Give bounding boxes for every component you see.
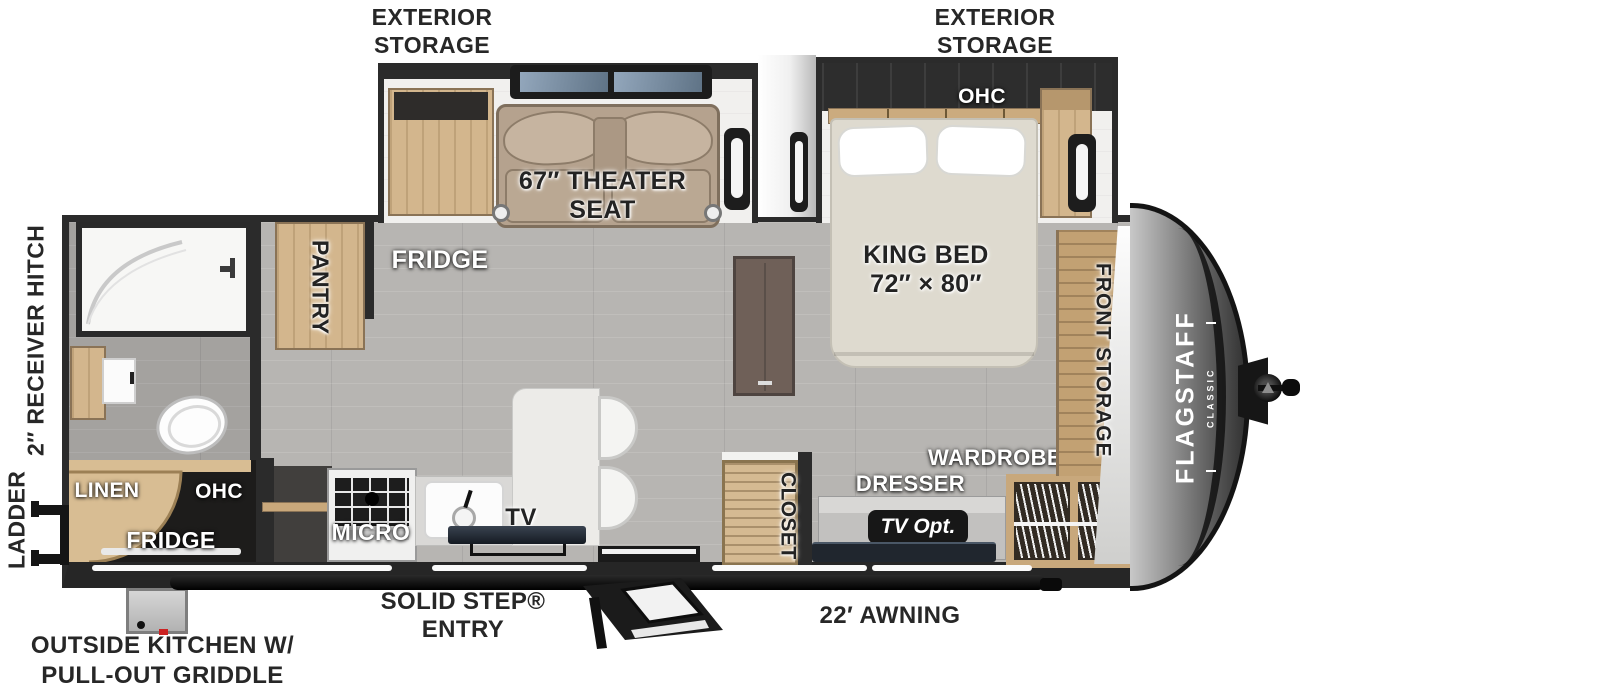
wardrobe-divider-icon xyxy=(1070,482,1078,560)
window-slit-icon xyxy=(1076,144,1088,200)
closet-label: CLOSET xyxy=(772,466,802,566)
tv-option-badge: TV Opt. xyxy=(868,510,968,544)
ladder-arm-bottom-icon xyxy=(36,554,64,564)
fridge-label: FRIDGE xyxy=(390,246,490,276)
tv-option-label: TV Opt. xyxy=(881,515,956,539)
wardrobe-label: WARDROBE xyxy=(915,444,1075,472)
slide-fridge-cabinet xyxy=(388,88,494,216)
king-bed-label-line2: 72″ × 80″ xyxy=(870,270,982,300)
outside-ohc-label: OHC xyxy=(190,479,248,505)
king-bed-label-line1: KING BED xyxy=(863,241,988,271)
exterior-storage-rear-line1: EXTERIOR xyxy=(372,3,493,31)
entertainment-cabinet xyxy=(733,256,795,396)
window-pane-icon xyxy=(614,72,702,92)
brand-name-label: FLAGSTAFF xyxy=(1168,235,1204,560)
outside-kitchen-line2: PULL-OUT GRIDDLE xyxy=(41,661,283,691)
outside-linen-label: LINEN xyxy=(72,478,142,504)
hangers-icon xyxy=(1016,484,1068,558)
awning-label: 22′ AWNING xyxy=(790,600,990,632)
entry-steps xyxy=(583,578,723,653)
solid-step-entry-label: SOLID STEP® ENTRY xyxy=(338,600,588,632)
fridge-counter-icon xyxy=(394,92,488,120)
cabinet-handle-icon xyxy=(758,381,772,385)
seat-back-icon xyxy=(502,108,607,167)
griddle-knob-icon xyxy=(137,621,145,629)
awning-rail-icon xyxy=(872,565,1032,571)
slide-side-window xyxy=(724,128,750,210)
bath-faucet-icon xyxy=(130,372,134,384)
pillow-icon xyxy=(837,124,929,177)
dresser-tv-panel xyxy=(812,542,996,562)
bedroom-side-window xyxy=(1068,134,1096,212)
exterior-storage-front-label: EXTERIOR STORAGE xyxy=(885,2,1105,60)
series-dash-icon xyxy=(1206,470,1216,472)
bedroom-ohc-label: OHC xyxy=(950,84,1014,110)
pantry-label: PANTRY xyxy=(288,228,352,346)
outside-fridge-label: FRIDGE xyxy=(120,526,222,556)
awning-rail-icon xyxy=(432,565,587,571)
bed-foot-line-icon xyxy=(834,352,1034,356)
shower-door-icon xyxy=(82,228,246,331)
entry-doorway xyxy=(598,546,700,562)
entry-sill-icon xyxy=(602,549,696,554)
dresser-label: DRESSER xyxy=(848,470,973,498)
window-slit-icon xyxy=(731,138,743,198)
kitchen-tv-stand-icon xyxy=(470,544,566,556)
stove-burner-icon xyxy=(365,492,379,506)
outside-kitchen-label: OUTSIDE KITCHEN W/ PULL-OUT GRIDDLE xyxy=(15,630,310,692)
pillow-icon xyxy=(935,124,1027,177)
brand-series-label: CLASSIC xyxy=(1202,330,1220,465)
hitch-handle-icon xyxy=(1282,379,1300,396)
pantry-side-wall xyxy=(365,222,374,319)
exterior-storage-front-line1: EXTERIOR xyxy=(935,3,1056,31)
awning-rail-icon xyxy=(92,565,392,571)
awning-end-cap-icon xyxy=(1040,578,1062,591)
bath-vanity xyxy=(70,346,106,420)
kitchen-tv-panel xyxy=(448,526,586,544)
cabinet-seam-icon xyxy=(764,263,766,391)
ladder-arm-top-icon xyxy=(36,505,64,515)
exterior-storage-rear-label: EXTERIOR STORAGE xyxy=(322,2,542,60)
floorplan-canvas: PANTRY LINEN OHC FRIDGE MICRO TV xyxy=(0,0,1600,696)
exterior-storage-front-line2: STORAGE xyxy=(937,31,1053,59)
window-pane-icon xyxy=(520,72,608,92)
front-storage-label: FRONT STORAGE xyxy=(1084,234,1120,486)
bathroom-wall xyxy=(250,222,261,460)
shower xyxy=(76,222,252,337)
awning-rail-icon xyxy=(712,565,867,571)
theater-seat-label: 67″ THEATER SEAT xyxy=(490,166,715,226)
series-dash-icon xyxy=(1206,322,1216,324)
outside-kitchen-line1: OUTSIDE KITCHEN W/ xyxy=(31,631,294,661)
king-bed-label: KING BED 72″ × 80″ xyxy=(820,240,1032,300)
theater-seat-label-line1: 67″ THEATER xyxy=(519,167,686,197)
window-slit-icon xyxy=(795,141,803,203)
theater-seat-label-line2: SEAT xyxy=(569,196,635,226)
gap-window xyxy=(790,132,808,212)
micro-label: MICRO xyxy=(318,518,424,548)
receiver-hitch-label: 2″ RECEIVER HITCH xyxy=(16,200,56,480)
cabinet-top-icon xyxy=(1042,90,1090,110)
pull-out-griddle xyxy=(126,588,188,634)
theater-window xyxy=(510,65,712,99)
ladder-label: LADDER xyxy=(0,450,34,590)
exterior-storage-rear-line2: STORAGE xyxy=(374,31,490,59)
